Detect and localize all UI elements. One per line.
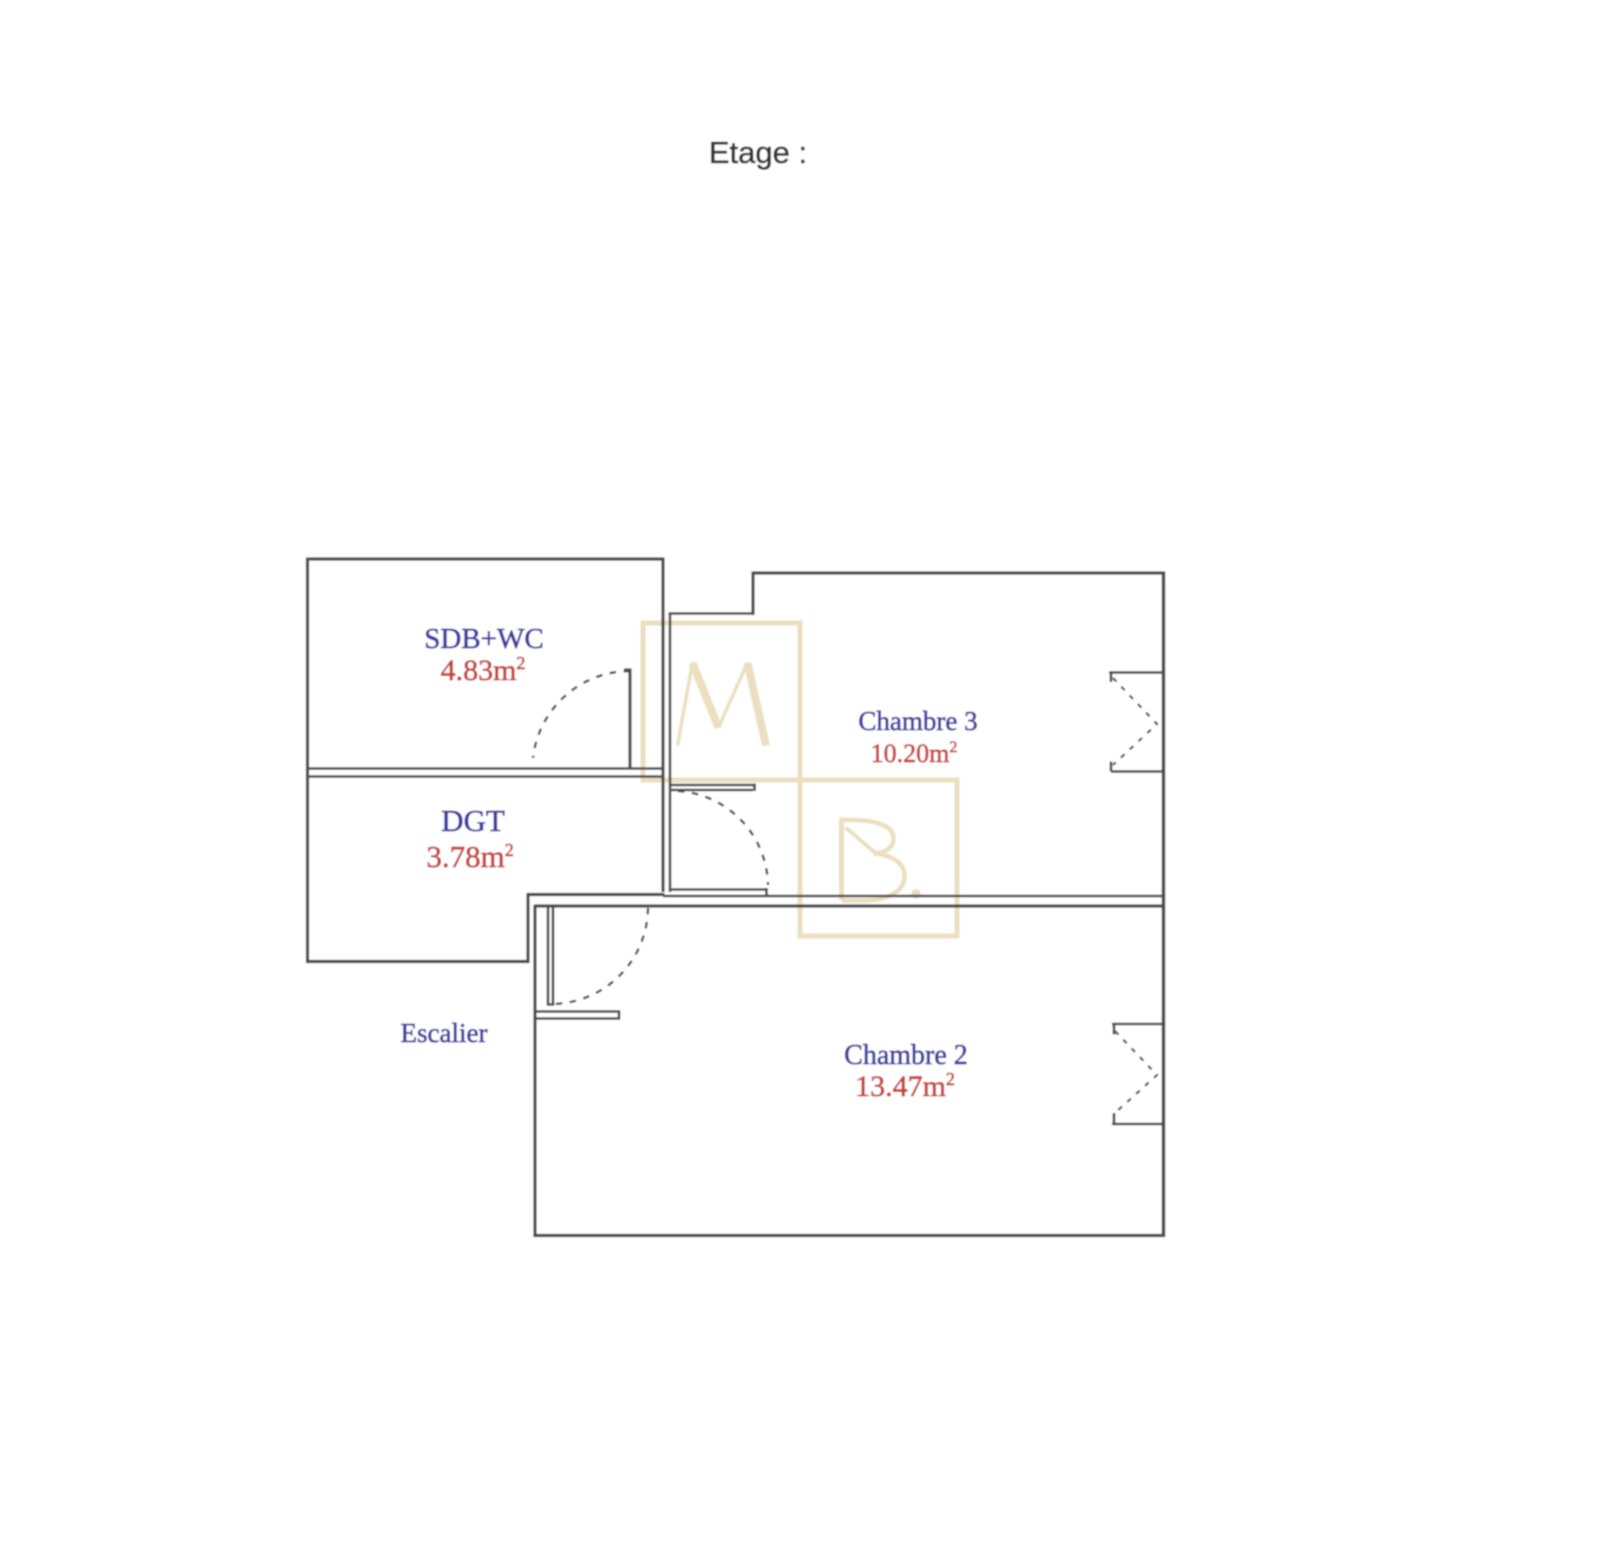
- svg-text:10.20m2: 10.20m2: [871, 739, 958, 768]
- svg-text:DGT: DGT: [441, 803, 505, 838]
- svg-text:13.47m2: 13.47m2: [855, 1069, 955, 1103]
- svg-text:Chambre 2: Chambre 2: [844, 1040, 968, 1071]
- svg-text:SDB+WC: SDB+WC: [424, 623, 543, 655]
- svg-text:3.78m2: 3.78m2: [426, 839, 513, 874]
- svg-text:Chambre 3: Chambre 3: [858, 706, 977, 736]
- svg-text:Etage :: Etage :: [709, 135, 807, 170]
- svg-text:4.83m2: 4.83m2: [441, 653, 526, 687]
- svg-text:Escalier: Escalier: [401, 1018, 488, 1048]
